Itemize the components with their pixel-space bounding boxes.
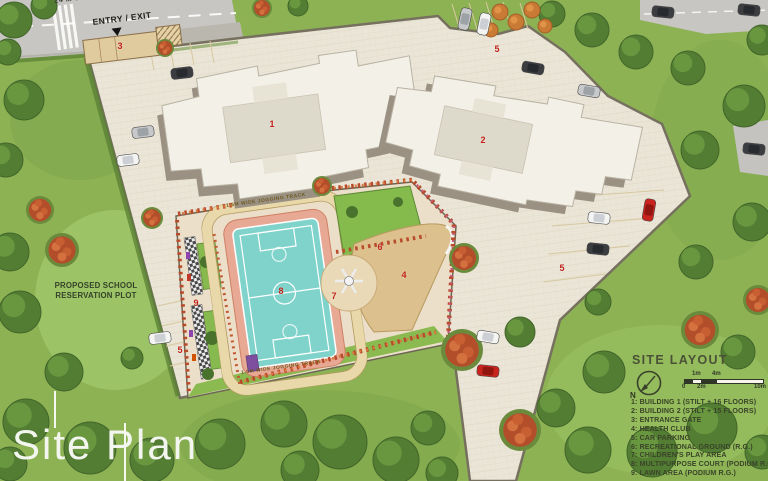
school-plot-note: PROPOSED SCHOOL RESERVATION PLOT [34,281,158,301]
car [737,3,760,16]
scale-label-10m: 10m [754,384,766,390]
site-plan-canvas: 24 M WIDE ROAD ENTRY / EXIT PROPOSED SCH… [0,0,768,481]
marker-lawn-area: 9 [193,298,198,308]
scale-bar: 1m 4m 0 2m 10m [684,371,764,395]
legend-item-9: 9: LAWN AREA (PODIUM R.G.) [631,469,768,478]
legend-item-1: 1: BUILDING 1 (STILT + 16 FLOORS) [631,398,768,407]
marker-parking-left: 5 [177,345,182,355]
scale-label-0: 0 [682,384,685,390]
legend-item-7: 7: CHILDREN'S PLAY AREA [631,451,768,460]
legend-items: 1: BUILDING 1 (STILT + 16 FLOORS) 2: BUI… [631,398,768,478]
childrens-play-area [321,255,377,311]
marker-health-club: 4 [401,270,406,280]
marker-parking-top: 5 [494,44,499,54]
north-compass-icon [636,370,662,396]
car [651,5,674,18]
school-plot-line2: RESERVATION PLOT [34,291,158,301]
legend-item-6: 6: RECREATIONAL GROUND (R.G.) [631,443,768,452]
marker-childrens-play: 7 [331,291,336,301]
legend-item-8: 8: MULTIPURPOSE COURT (PODIUM R.G.) [631,460,768,469]
car [586,242,609,255]
legend-item-5: 5: CAR PARKING [631,434,768,443]
scale-label-2m: 2m [697,384,706,390]
car [148,331,171,345]
scale-bar-segments [684,379,764,384]
scale-label-1m: 1m [692,371,701,377]
legend-item-2: 2: BUILDING 2 (STILT + 15 FLOORS) [631,407,768,416]
car [170,66,193,80]
page-title: Site Plan [12,421,198,469]
scale-label-4m: 4m [712,371,721,377]
marker-recreational-ground: 6 [377,242,382,252]
car [476,364,499,377]
car [742,142,765,155]
entry-arrow-icon [112,27,123,36]
legend-item-4: 4: HEALTH CLUB [631,425,768,434]
legend-title: SITE LAYOUT [632,353,728,367]
school-plot-line1: PROPOSED SCHOOL [34,281,158,291]
car [131,125,154,139]
car [587,211,610,224]
marker-building-2: 2 [480,135,485,145]
marker-parking-right: 5 [559,263,564,273]
legend: SITE LAYOUT N 1m 4m 0 2m 10m 1: BUILDING… [628,353,766,481]
marker-entrance-gate: 3 [117,41,122,51]
marker-multipurpose-court: 8 [278,286,283,296]
legend-item-3: 3: ENTRANCE GATE [631,416,768,425]
marker-building-1: 1 [269,119,274,129]
car [116,153,139,167]
